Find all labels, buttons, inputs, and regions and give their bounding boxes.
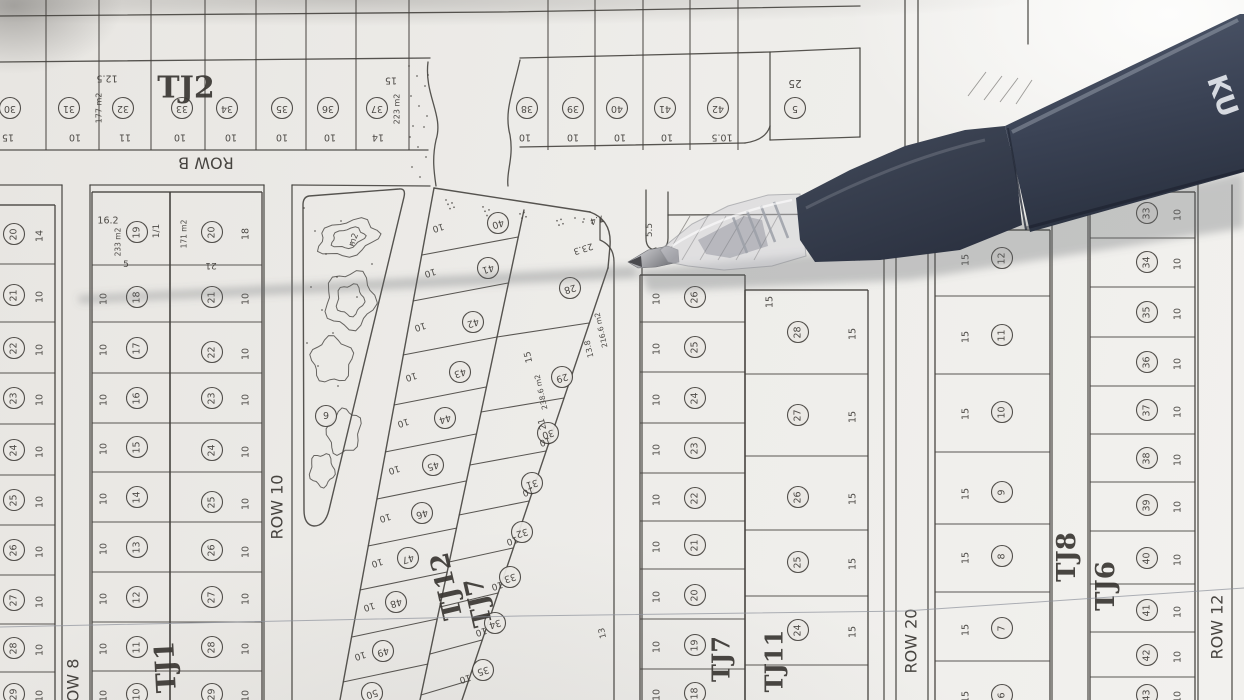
dim-label: 10 — [490, 579, 504, 592]
dim-label: 10 — [567, 132, 579, 143]
dim-label: 15 — [848, 626, 859, 638]
annotation-label: 177 m2 — [95, 93, 104, 124]
lot-number: 7 — [997, 625, 1008, 631]
dim-label: 10 — [35, 546, 46, 558]
lot-number: 23 — [9, 392, 20, 404]
stipple-dot — [556, 220, 558, 222]
dim-label: 10 — [1173, 406, 1184, 418]
stipple-dot — [426, 115, 428, 117]
lot-number: 29 — [9, 688, 20, 700]
annotation-label: 223 m2 — [393, 94, 402, 125]
lot-number: 40 — [611, 103, 623, 114]
stipple-dot — [417, 146, 419, 148]
dim-label: 10 — [241, 593, 252, 605]
lot-number: 16 — [132, 392, 143, 404]
street-name-label: TJ1 — [149, 640, 183, 693]
dim-label: 10 — [431, 221, 445, 234]
annotation-label: 15 — [523, 350, 535, 363]
lot-number: 27 — [793, 409, 804, 421]
dim-label: 10 — [1173, 651, 1184, 663]
stipple-dot — [317, 365, 319, 367]
lot-number: 25 — [793, 556, 804, 568]
annotation-label: 216.6 m2 — [593, 311, 610, 348]
lot-number: 27 — [207, 591, 218, 603]
lot-number: 25 — [207, 496, 218, 508]
lot-number: 43 — [1142, 689, 1153, 700]
dim-label: 10 — [99, 443, 110, 455]
street-name-label: ROW 12 — [1208, 595, 1227, 660]
dim-label: 10 — [652, 293, 663, 305]
street-line — [770, 137, 860, 140]
stipple-dot — [447, 203, 449, 205]
stipple-dot — [449, 208, 451, 210]
stipple-dot — [427, 74, 429, 76]
stipple-dot — [409, 136, 411, 138]
stipple-dot — [583, 218, 585, 220]
paper-crease — [0, 588, 1244, 627]
lot-number: 39 — [1142, 499, 1153, 511]
lot-number: 26 — [793, 491, 804, 503]
lot-number: 8 — [997, 553, 1008, 559]
stipple-dot — [371, 263, 373, 265]
dim-label: 10 — [174, 132, 186, 143]
dim-label: 10 — [69, 132, 81, 143]
street-name-label: ROW 10 — [268, 475, 287, 540]
lot-number: 26 — [690, 291, 701, 303]
pen: KU — [78, 14, 1244, 303]
dim-label: 15 — [961, 408, 972, 420]
parcel-line — [343, 664, 428, 682]
lot-number: 26 — [9, 544, 20, 556]
dim-label: 10 — [35, 644, 46, 656]
dim-label: 14 — [372, 132, 384, 143]
stipple-dot — [574, 217, 576, 219]
lot-number: 20 — [690, 589, 701, 601]
dim-label: 10 — [99, 643, 110, 655]
dim-label: 10 — [1173, 606, 1184, 618]
dim-label: 10 — [505, 534, 519, 547]
dim-label: 10 — [652, 689, 663, 700]
lot-number: 23 — [690, 442, 701, 454]
parcel-line — [352, 619, 437, 637]
dim-label: 10 — [378, 511, 392, 524]
lot-number: 24 — [793, 624, 804, 636]
lot-number: 25 — [9, 494, 20, 506]
lot-number: 24 — [207, 444, 218, 456]
dim-label: 10 — [99, 394, 110, 406]
lot-number: 9 — [323, 411, 329, 422]
stipple-dot — [314, 230, 316, 232]
dim-label: 10 — [1173, 308, 1184, 320]
stipple-dot — [523, 212, 525, 214]
stipple-dot — [453, 206, 455, 208]
stipple-dot — [582, 221, 584, 223]
lot-number: 24 — [9, 444, 20, 456]
dim-label: 10.5 — [711, 132, 732, 143]
street-line — [340, 188, 434, 700]
lot-number: 22 — [9, 342, 20, 354]
stipple-dot — [416, 75, 418, 77]
dim-label: 10 — [387, 463, 401, 476]
lot-number: 14 — [132, 491, 143, 503]
pen-shadow-tip — [78, 266, 638, 303]
photo-of-plat-map: 3015311032113310341035103610371438103910… — [0, 0, 1244, 700]
lot-number: 36 — [322, 103, 334, 114]
parcel-line — [1000, 78, 1018, 102]
dim-label: 15 — [848, 411, 859, 423]
dim-label: 10 — [413, 320, 427, 333]
dim-label: 10 — [370, 556, 384, 569]
street-name-label: ROW B — [178, 154, 234, 173]
lot-number: 27 — [9, 594, 20, 606]
stipple-dot — [424, 85, 426, 87]
dim-label: 10 — [241, 498, 252, 510]
dim-label: 10 — [1173, 454, 1184, 466]
lot-number: 26 — [207, 544, 218, 556]
lot-number: 19 — [132, 226, 143, 238]
lot-number: 42 — [1142, 649, 1153, 661]
annotation-label: 1/1 — [152, 224, 162, 238]
street-name-label: TJ7 — [707, 636, 736, 682]
park-texture — [325, 271, 377, 331]
lot-number: 18 — [690, 687, 701, 699]
street-line — [508, 60, 520, 186]
lot-number: 35 — [1142, 306, 1153, 318]
dim-label: 10 — [241, 394, 252, 406]
lot-number: 38 — [521, 103, 533, 114]
annotation-label: 12.5 — [96, 73, 117, 84]
dim-label: 14 — [35, 230, 46, 242]
lot-number: 22 — [207, 346, 218, 358]
annotation-label: 238.6 m2 — [533, 373, 550, 410]
annotation-label: 233 m2 — [114, 227, 123, 256]
dim-label: 15 — [848, 493, 859, 505]
plat-map-scene: 3015311032113310341035103610371438103910… — [0, 0, 1244, 700]
dim-label: 10 — [35, 291, 46, 303]
stipple-dot — [560, 219, 562, 221]
street-name-label: TJ2 — [157, 71, 214, 106]
dim-label: 10 — [241, 690, 252, 700]
dim-label: 10 — [225, 132, 237, 143]
dim-label: 15 — [848, 328, 859, 340]
lot-number: 36 — [1142, 356, 1153, 368]
stipple-dot — [451, 202, 453, 204]
annotation-label: 21 — [537, 417, 549, 430]
stipple-dot — [521, 217, 523, 219]
parcel-line — [422, 237, 518, 255]
dim-label: 10 — [423, 266, 437, 279]
lot-number: 25 — [690, 341, 701, 353]
parcel-line — [403, 337, 497, 355]
stipple-dot — [411, 166, 413, 168]
parcel-line — [385, 434, 476, 452]
dim-label: 10 — [362, 600, 376, 613]
lot-number: 11 — [132, 641, 143, 653]
dim-label: 10 — [276, 132, 288, 143]
lot-number: 41 — [659, 103, 671, 114]
annotation-label: 5 — [123, 260, 129, 270]
annotation-label: 15 — [385, 75, 397, 86]
parcel-line — [481, 398, 564, 412]
lot-number: 34 — [1142, 256, 1153, 268]
stipple-dot — [332, 332, 334, 334]
lot-number: 37 — [1142, 404, 1153, 416]
lot-number: 38 — [1142, 452, 1153, 464]
annotation-label: m2 — [347, 232, 361, 248]
lot-number: 19 — [690, 639, 701, 651]
lot-number: 10 — [997, 406, 1008, 418]
street-line — [0, 58, 430, 62]
lot-number: 24 — [690, 392, 701, 404]
lot-number: 10 — [132, 688, 143, 700]
annotation-label: 5.5 — [645, 223, 655, 237]
annotation-label: 171 m2 — [180, 219, 189, 248]
dim-label: 10 — [99, 543, 110, 555]
street-name-label: TJ8 — [1052, 532, 1082, 582]
annotation-label: 13.8 — [583, 339, 596, 358]
dim-label: 15 — [2, 132, 14, 143]
street-name-label: TJ6 — [1091, 561, 1121, 611]
parcel-line — [968, 72, 986, 96]
stipple-dot — [419, 176, 421, 178]
stipple-dot — [340, 220, 342, 222]
lot-number: 22 — [690, 492, 701, 504]
stipple-dot — [325, 253, 327, 255]
stipple-dot — [356, 296, 358, 298]
dim-label: 10 — [99, 493, 110, 505]
lot-number: 39 — [567, 103, 579, 114]
dim-label: 10 — [652, 641, 663, 653]
dim-label: 15 — [961, 624, 972, 636]
parcel-line — [449, 548, 513, 562]
dim-label: 10 — [1173, 554, 1184, 566]
lot-number: 20 — [9, 228, 20, 240]
annotation-label: 23.3 — [572, 240, 594, 255]
dim-label: 18 — [241, 228, 252, 240]
dim-label: 10 — [241, 446, 252, 458]
dim-label: 10 — [35, 394, 46, 406]
dim-label: 15 — [961, 331, 972, 343]
dim-label: 10 — [324, 132, 336, 143]
stipple-dot — [337, 385, 339, 387]
parcel-line — [984, 76, 1002, 100]
parcel-line — [497, 323, 589, 337]
dim-label: 10 — [353, 649, 367, 662]
dim-label: 15 — [961, 691, 972, 700]
parcel-line — [377, 481, 466, 499]
stipple-dot — [410, 95, 412, 97]
dim-label: 10 — [241, 643, 252, 655]
dim-label: 10 — [241, 546, 252, 558]
lot-number: 29 — [207, 688, 218, 700]
lot-number: 13 — [132, 541, 143, 553]
park-texture — [310, 336, 354, 382]
dim-label: 10 — [458, 672, 472, 685]
lot-number: 15 — [132, 441, 143, 453]
street-line — [745, 126, 770, 143]
street-line — [642, 248, 656, 700]
lot-number: 31 — [63, 103, 75, 114]
dim-label: 10 — [652, 541, 663, 553]
dim-label: 10 — [35, 596, 46, 608]
lot-number: 34 — [221, 103, 233, 114]
dim-label: 10 — [652, 394, 663, 406]
street-name-label: ROW 8 — [64, 659, 83, 700]
stipple-dot — [321, 309, 323, 311]
annotation-label: 13 — [597, 627, 609, 640]
stipple-dot — [488, 209, 490, 211]
lot-number: 12 — [132, 591, 143, 603]
stipple-dot — [562, 223, 564, 225]
lot-number: 21 — [9, 289, 20, 301]
stipple-dot — [484, 210, 486, 212]
annotation-label: 15 — [765, 296, 776, 308]
street-line — [646, 190, 668, 250]
dim-label: 10 — [404, 370, 418, 383]
dim-label: 10 — [652, 494, 663, 506]
parcel-line — [1016, 80, 1032, 104]
lot-number: 28 — [207, 641, 218, 653]
dim-label: 10 — [519, 132, 531, 143]
lot-number: 32 — [117, 103, 129, 114]
dim-label: 10 — [241, 348, 252, 360]
lot-number: 11 — [997, 329, 1008, 341]
street-line — [434, 188, 590, 212]
lot-number: 35 — [276, 103, 288, 114]
dim-label: 10 — [99, 690, 110, 700]
dim-label: 10 — [35, 496, 46, 508]
annotation-label: 7.4 — [588, 212, 605, 226]
lot-number: 17 — [132, 342, 143, 354]
dim-label: 10 — [652, 444, 663, 456]
stipple-dot — [525, 216, 527, 218]
street-line — [427, 62, 437, 186]
dim-label: 15 — [961, 488, 972, 500]
annotation-label: 25 — [788, 77, 801, 89]
lot-number: 30 — [4, 103, 16, 114]
dim-label: 15 — [961, 552, 972, 564]
parcel-line — [368, 528, 457, 546]
dim-label: 10 — [35, 446, 46, 458]
lot-number: 23 — [207, 392, 218, 404]
stipple-dot — [486, 215, 488, 217]
stipple-dot — [303, 207, 305, 209]
street-name-label: TJ11 — [760, 630, 789, 693]
stipple-dot — [412, 125, 414, 127]
lot-number: 9 — [997, 489, 1008, 495]
street-line — [0, 6, 860, 16]
dim-label: 10 — [1173, 691, 1184, 700]
stipple-dot — [558, 224, 560, 226]
stipple-dot — [482, 206, 484, 208]
street-name-label: ROW 20 — [902, 609, 921, 674]
dim-label: 10 — [661, 132, 673, 143]
dim-label: 11 — [119, 132, 131, 143]
dim-label: 10 — [35, 690, 46, 700]
dim-label: 10 — [614, 132, 626, 143]
lot-number: 5 — [792, 103, 798, 114]
lot-number: 40 — [1142, 552, 1153, 564]
dim-label: 10 — [396, 416, 410, 429]
stipple-dot — [336, 276, 338, 278]
lot-number: 6 — [997, 692, 1008, 698]
stipple-dot — [306, 342, 308, 344]
dim-label: 15 — [848, 558, 859, 570]
parcel-line — [459, 501, 529, 515]
dim-label: 10 — [99, 344, 110, 356]
dim-label: 10 — [1173, 501, 1184, 513]
stipple-dot — [418, 105, 420, 107]
dim-label: 10 — [652, 591, 663, 603]
park-texture — [309, 454, 335, 488]
annotation-label: 21 — [205, 260, 216, 270]
parcel-line — [470, 451, 546, 465]
lot-number: 21 — [690, 539, 701, 551]
lot-number: 42 — [712, 103, 724, 114]
lot-number: 28 — [9, 642, 20, 654]
dim-label: 10 — [1173, 258, 1184, 270]
annotation-label: 16.2 — [97, 216, 118, 227]
stipple-dot — [425, 156, 427, 158]
dim-label: 10 — [1173, 358, 1184, 370]
dim-label: 10 — [652, 343, 663, 355]
dim-label: 10 — [99, 593, 110, 605]
parcel-line — [394, 387, 486, 405]
stipple-dot — [423, 126, 425, 128]
stipple-dot — [519, 213, 521, 215]
dim-label: 10 — [35, 344, 46, 356]
lot-number: 37 — [371, 103, 383, 114]
parcel-line — [430, 640, 482, 654]
stipple-dot — [408, 65, 410, 67]
stipple-dot — [445, 199, 447, 201]
street-line — [292, 185, 430, 186]
lot-number: 41 — [1142, 604, 1153, 616]
lot-number: 20 — [207, 226, 218, 238]
lot-number: 28 — [793, 326, 804, 338]
street-line — [520, 143, 745, 147]
